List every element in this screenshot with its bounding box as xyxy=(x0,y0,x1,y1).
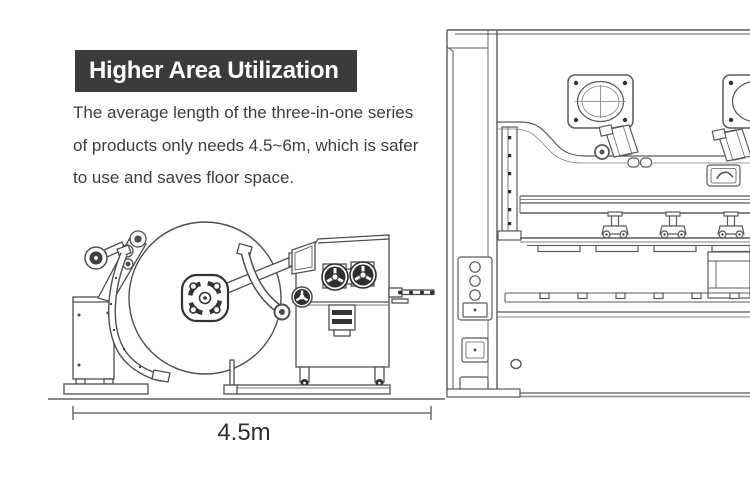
press-slide xyxy=(520,196,750,213)
dimension-line xyxy=(73,406,431,420)
handwheel xyxy=(322,264,348,290)
flange-plate xyxy=(568,75,633,128)
side-attachment xyxy=(708,252,750,298)
dimension-label: 4.5m xyxy=(65,419,423,447)
nameplate xyxy=(707,165,740,186)
page-title: Higher Area Utilization xyxy=(89,57,339,85)
description-line: of products only needs 4.5~6m, which is … xyxy=(73,130,443,163)
press-machine-drawing xyxy=(435,25,750,400)
mandrel-hub xyxy=(182,275,228,321)
side-handwheel xyxy=(292,287,312,307)
press-control-panel xyxy=(447,257,520,397)
title-banner: Higher Area Utilization xyxy=(75,50,357,92)
page: Higher Area Utilization The average leng… xyxy=(0,0,750,481)
description-line: The average length of the three-in-one s… xyxy=(73,97,443,130)
sight-glasses xyxy=(628,158,652,167)
description-text: The average length of the three-in-one s… xyxy=(73,97,443,195)
flange-plate xyxy=(723,75,750,128)
press-bolster xyxy=(520,238,750,252)
exit-guide-rod xyxy=(389,288,434,303)
press-guide-rail xyxy=(498,127,521,240)
description-line: to use and saves floor space. xyxy=(73,162,443,195)
handwheel xyxy=(350,262,376,288)
t-bolt xyxy=(718,212,744,238)
t-bolt xyxy=(660,212,686,238)
tie-rod-bracket xyxy=(595,125,638,159)
press-bed xyxy=(497,293,750,369)
t-bolt xyxy=(602,212,628,238)
